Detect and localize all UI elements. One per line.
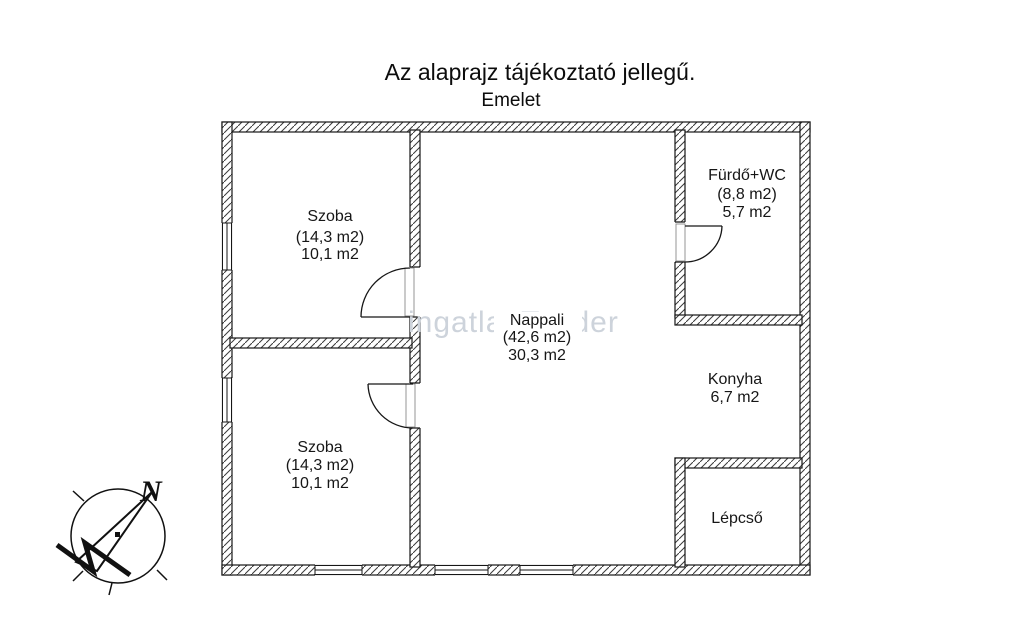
page-title: Az alaprajz tájékoztató jellegű. <box>385 59 696 85</box>
door-arc-szoba-top <box>361 268 410 317</box>
door-arc-furdo <box>685 226 722 262</box>
room-label-furdo-name: Fürdő+WC <box>708 167 786 184</box>
wall-furdo-bottom <box>675 315 802 325</box>
compass-center-dot <box>115 532 120 537</box>
door-frame-furdo <box>676 224 685 261</box>
room-label-szoba-bottom-name: Szoba <box>297 439 342 456</box>
room-label-furdo-net: 5,7 m2 <box>723 204 772 221</box>
north-label: N <box>139 475 163 508</box>
wall-bottom <box>222 565 810 575</box>
wall-szoba-divider <box>230 338 412 348</box>
floor-plan-image: Az alaprajz tájékoztató jellegű. Emelet <box>0 0 1024 631</box>
floor-plan-page: Az alaprajz tájékoztató jellegű. Emelet <box>0 0 1024 631</box>
floor-label: Emelet <box>481 90 541 111</box>
room-label-szoba-top-net: 10,1 m2 <box>301 246 359 263</box>
room-label-konyha-name: Konyha <box>708 371 762 388</box>
door-frame-szoba-bottom <box>406 384 415 427</box>
room-label-szoba-bottom-net: 10,1 m2 <box>291 475 349 492</box>
room-label-konyha-net: 6,7 m2 <box>711 389 760 406</box>
wall-lepcso-top <box>675 458 802 468</box>
compass-rose: N <box>57 475 167 595</box>
room-label-nappali-name: Nappali <box>510 312 564 329</box>
room-label-furdo-gross: (8,8 m2) <box>717 186 777 203</box>
room-label-szoba-bottom-gross: (14,3 m2) <box>286 457 354 474</box>
windows <box>221 223 573 576</box>
room-label-szoba-top-name: Szoba <box>307 208 352 225</box>
wall-right <box>800 122 810 575</box>
room-label-szoba-top-gross: (14,3 m2) <box>296 229 364 246</box>
room-label-nappali-net: 30,3 m2 <box>508 347 566 364</box>
wall-top <box>222 122 810 132</box>
wall-lepcso-left <box>675 458 685 567</box>
room-label-lepcso-name: Lépcső <box>711 510 763 527</box>
room-label-nappali-gross: (42,6 m2) <box>503 329 571 346</box>
